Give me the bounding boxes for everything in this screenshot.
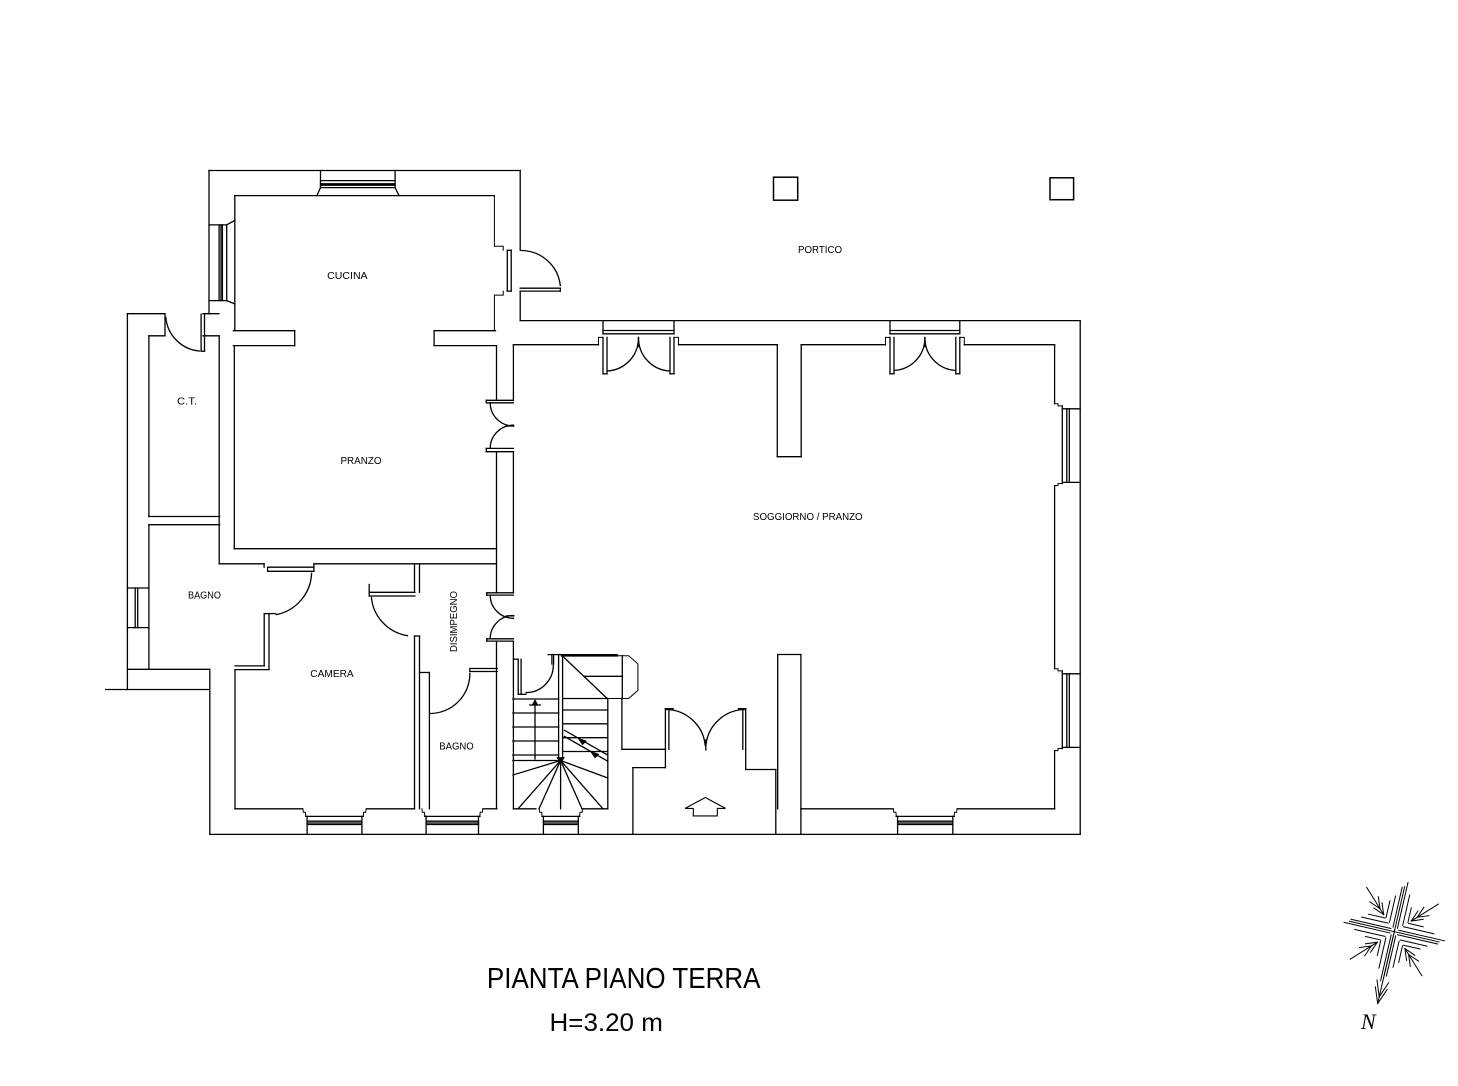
svg-text:SOGGIORNO / PRANZO: SOGGIORNO / PRANZO <box>753 512 863 523</box>
svg-text:PRANZO: PRANZO <box>340 456 381 467</box>
svg-text:CUCINA: CUCINA <box>327 271 367 282</box>
svg-text:N: N <box>1360 1009 1377 1034</box>
svg-text:H=3.20 m: H=3.20 m <box>550 1009 663 1037</box>
svg-text:DISIMPEGNO: DISIMPEGNO <box>449 591 460 652</box>
svg-text:PORTICO: PORTICO <box>798 245 842 256</box>
svg-text:PIANTA PIANO TERRA: PIANTA PIANO TERRA <box>487 963 761 995</box>
svg-text:BAGNO: BAGNO <box>188 591 221 602</box>
svg-text:C.T.: C.T. <box>177 397 197 408</box>
svg-text:CAMERA: CAMERA <box>310 669 353 680</box>
svg-text:BAGNO: BAGNO <box>439 742 473 753</box>
